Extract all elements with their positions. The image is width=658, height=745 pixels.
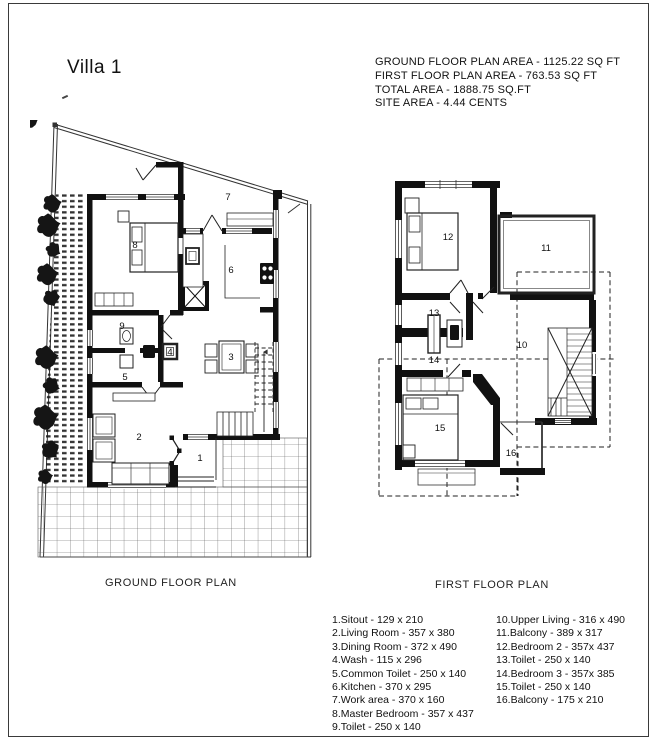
walls (87, 162, 282, 488)
legend-item: 16.Balcony - 175 x 210 (496, 694, 625, 707)
legend-item: 7.Work area - 370 x 160 (332, 694, 474, 707)
first-plan-caption: FIRST FLOOR PLAN (435, 579, 549, 591)
room-label-master-bedroom: 8 (132, 240, 137, 251)
legend-item: 13.Toilet - 250 x 140 (496, 654, 625, 667)
legend-item: 15.Toilet - 250 x 140 (496, 681, 625, 694)
stairwell (548, 328, 592, 416)
area-summary: GROUND FLOOR PLAN AREA - 1125.22 SQ FT F… (375, 56, 620, 111)
planting-strip (30, 120, 86, 485)
room-label-upper-living: 10 (517, 340, 528, 351)
site-area-text: SITE AREA - 4.44 CENTS (375, 97, 620, 111)
room-label-common-toilet: 5 (122, 372, 127, 383)
room-label-toilet-13: 13 (429, 308, 440, 319)
room-label-balcony-11: 11 (541, 243, 551, 254)
ground-plan-caption: GROUND FLOOR PLAN (105, 577, 237, 589)
legend-item: 1.Sitout - 129 x 210 (332, 614, 474, 627)
legend-column-right: 10.Upper Living - 316 x 490 11.Balcony -… (496, 614, 625, 708)
room-label-kitchen: 6 (228, 265, 233, 276)
ground-area-text: GROUND FLOOR PLAN AREA - 1125.22 SQ FT (375, 56, 620, 70)
room-label-bedroom-2: 12 (443, 232, 454, 243)
ground-floor-plan: 1 2 3 4 5 6 7 8 9 (30, 120, 315, 570)
room-label-wash: 4 (167, 347, 172, 358)
room-label-toilet-15: 15 (435, 423, 446, 434)
balcony-border (499, 216, 594, 293)
washbasin (143, 345, 155, 358)
room-label-sitout: 1 (197, 453, 202, 464)
total-area-text: TOTAL AREA - 1888.75 SQ.FT (375, 84, 620, 98)
room-label-bedroom-3: 14 (429, 355, 440, 366)
drawing-sheet: Villa 1 GROUND FLOOR PLAN AREA - 1125.22… (0, 0, 658, 745)
legend-item: 3.Dining Room - 372 x 490 (332, 641, 474, 654)
room-label-toilet: 9 (119, 321, 124, 332)
legend-item: 11.Balcony - 389 x 317 (496, 627, 625, 640)
room-label-work-area: 7 (225, 192, 230, 203)
page-title: Villa 1 (67, 57, 122, 79)
legend-item: 2.Living Room - 357 x 380 (332, 627, 474, 640)
first-floor-plan: 10 11 12 13 14 15 16 (370, 160, 645, 515)
legend-column-left: 1.Sitout - 129 x 210 2.Living Room - 357… (332, 614, 474, 735)
legend-item: 5.Common Toilet - 250 x 140 (332, 668, 474, 681)
stove (260, 263, 274, 284)
sofa (112, 463, 169, 484)
first-area-text: FIRST FLOOR PLAN AREA - 763.53 SQ FT (375, 70, 620, 84)
legend-item: 12.Bedroom 2 - 357x 437 (496, 641, 625, 654)
room-label-dining: 3 (228, 352, 233, 363)
legend-item: 8.Master Bedroom - 357 x 437 (332, 708, 474, 721)
legend-item: 9.Toilet - 250 x 140 (332, 721, 474, 734)
legend-item: 14.Bedroom 3 - 357x 385 (496, 668, 625, 681)
legend-item: 10.Upper Living - 316 x 490 (496, 614, 625, 627)
tv-unit (113, 393, 155, 401)
legend-item: 6.Kitchen - 370 x 295 (332, 681, 474, 694)
legend-item: 4.Wash - 115 x 296 (332, 654, 474, 667)
room-label-balcony-16: 16 (506, 448, 517, 459)
room-label-living: 2 (136, 432, 141, 443)
work-counter (227, 213, 273, 226)
